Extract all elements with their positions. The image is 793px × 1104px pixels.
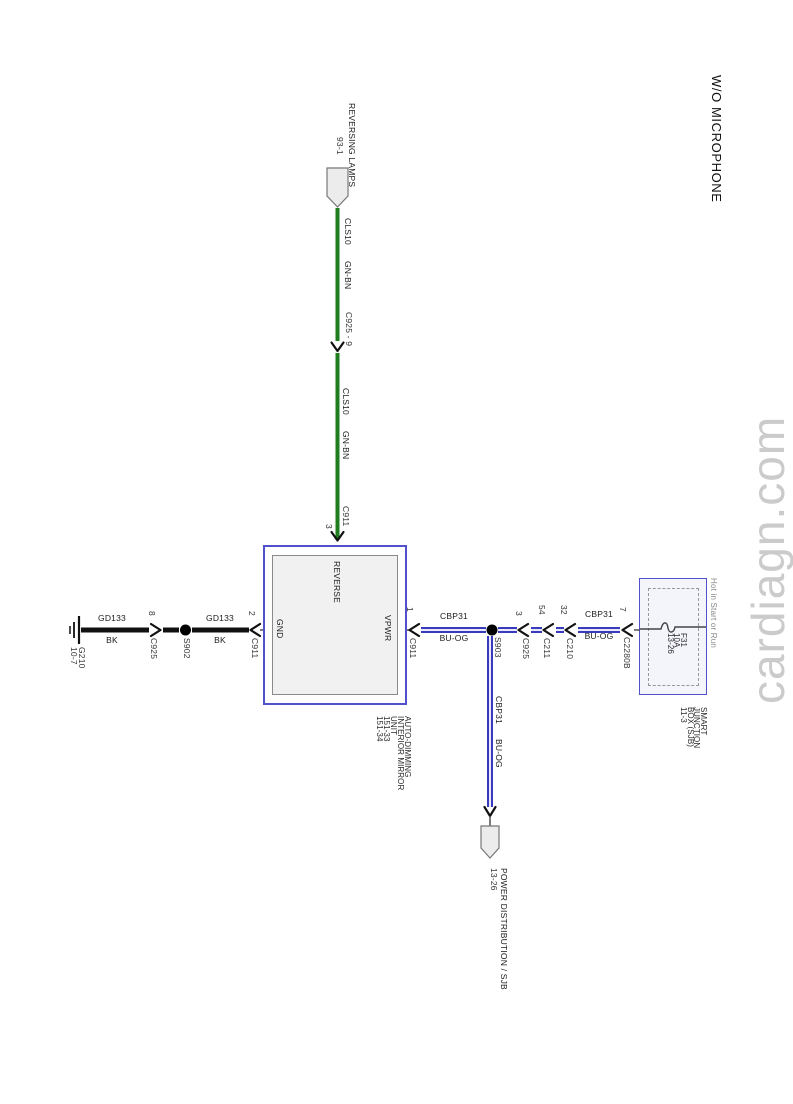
wire-label-circuit: GD133 (200, 614, 240, 623)
wire-label-color: BK (200, 636, 240, 645)
pin-number: 1 (405, 607, 414, 612)
offpage-arrow-power-distribution (481, 826, 499, 858)
wiring-overlay (0, 0, 793, 1104)
wire-label-color: BU-OG (494, 739, 503, 768)
connector-label-c911: C911 (341, 506, 350, 527)
connector-symbol-c2280b-7 (623, 624, 633, 636)
pin-label-vpwr: VPWR (383, 615, 392, 641)
connector-label-c911: C911 (408, 638, 417, 659)
fuse-line: 13-26 (667, 633, 674, 654)
splice-s903 (487, 625, 498, 636)
reversing-lamps-label: REVERSING LAMPS (347, 103, 356, 187)
connector-symbol-c911-1 (410, 624, 420, 636)
reversing-lamps-page-ref: 93-1 (335, 137, 344, 155)
wire-label-color: BK (92, 636, 132, 645)
wire-label-circuit: CBP31 (432, 612, 476, 621)
splice-label-s903: S903 (493, 637, 502, 658)
offpage-arrow-reversing-lamps (327, 168, 348, 207)
wire-label-color: GN-BN (343, 261, 352, 289)
pin-number: 7 (618, 607, 627, 612)
wiring-diagram-page: W/O MICROPHONE cardiagn.com (0, 0, 793, 1104)
wire-label-circuit: CBP31 (578, 610, 620, 619)
wire-label-circuit: GD133 (92, 614, 132, 623)
connector-symbol-c925-9 (332, 343, 344, 352)
wire-label-circuit: CLS10 (341, 388, 350, 415)
connector-symbol-c925-8 (151, 624, 161, 636)
splice-label-s902: S902 (182, 638, 191, 659)
sjb-caption: SMART JUNCTION BOX (SJB) 11-3 (680, 707, 706, 748)
connector-symbol-c911-2 (251, 624, 261, 636)
wire-label-circuit: CLS10 (343, 218, 352, 245)
pin-label-gnd: GND (275, 619, 284, 639)
connector-label-c210: C210 (565, 638, 574, 659)
pin-label-reverse: REVERSE (332, 561, 341, 603)
connector-label-c925: C925 (149, 638, 158, 659)
wire-label-circuit: CBP31 (494, 696, 503, 724)
connector-label-c211: C211 (542, 638, 551, 659)
mirror-unit-caption: AUTO-DIMMING INTERIOR MIRROR UNIT 151-33… (375, 716, 410, 790)
pin-number: 8 (147, 611, 156, 616)
fuse-f31-symbol (640, 623, 706, 632)
fuse-f31-label: F31 10A 13-26 (667, 633, 687, 654)
pin-number: 3 (514, 611, 523, 616)
pin-number: 32 (559, 605, 568, 615)
wire-label-color: GN-BN (341, 431, 350, 459)
splice-s902 (180, 625, 191, 636)
hot-in-start-or-run-label: Hot in Start or Run (709, 578, 718, 648)
connector-symbol-c925-3 (519, 624, 529, 636)
arrow-to-power-distribution (485, 807, 496, 816)
ground-page-ref: 10-7 (69, 647, 78, 665)
connector-label-c911: C911 (250, 638, 259, 659)
power-distribution-page-ref: 13-26 (489, 868, 498, 891)
pin-number: 2 (247, 611, 256, 616)
connector-label-c925-9: C925 - 9 (344, 312, 353, 346)
pin-number: 54 (537, 605, 546, 615)
connector-label-c925: C925 (521, 638, 530, 659)
wire-label-color: BU-OG (578, 632, 620, 641)
connector-label-c2280b: C2280B (622, 637, 631, 669)
power-distribution-label: POWER DISTRIBUTION / SJB (499, 868, 508, 990)
pin-number: 3 (324, 524, 333, 529)
connector-symbol-c210-32 (566, 624, 576, 636)
connector-symbol-c211-54 (544, 624, 554, 636)
wire-label-color: BU-OG (432, 634, 476, 643)
caption-line: 151-34 (375, 716, 382, 790)
